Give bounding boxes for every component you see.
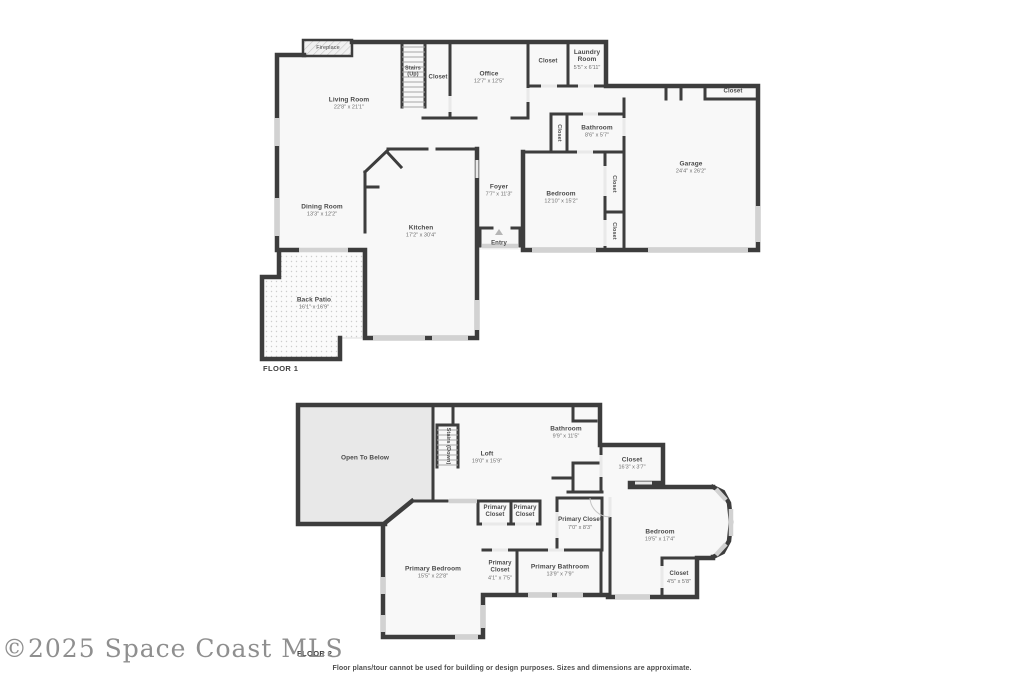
floor2-plan <box>298 405 731 637</box>
fireplace-box <box>303 40 352 56</box>
floor1-title: FLOOR 1 <box>263 364 298 373</box>
floorplan-walls-svg <box>0 0 1024 683</box>
entry-arrow-icon <box>495 229 503 235</box>
mls-watermark: ©2025 Space Coast MLS <box>2 634 344 663</box>
floor1-plan <box>262 40 758 359</box>
disclaimer-text: Floor plans/tour cannot be used for buil… <box>0 665 1024 672</box>
floorplan-image: Fireplace Living Room 22'8" x 21'1" Stai… <box>0 0 1024 683</box>
